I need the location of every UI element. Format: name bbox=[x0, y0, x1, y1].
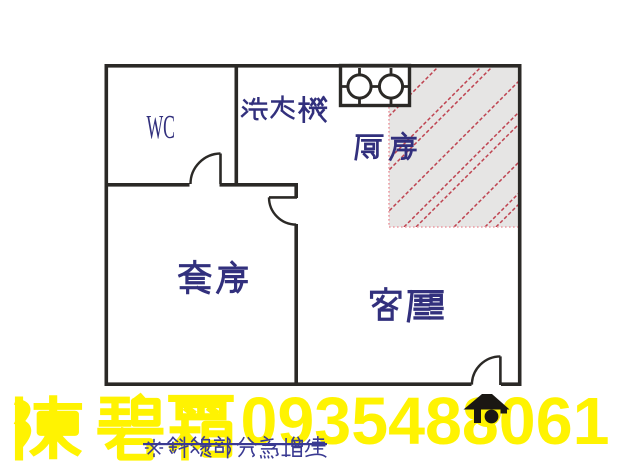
svg-text:WC: WC bbox=[147, 108, 175, 146]
